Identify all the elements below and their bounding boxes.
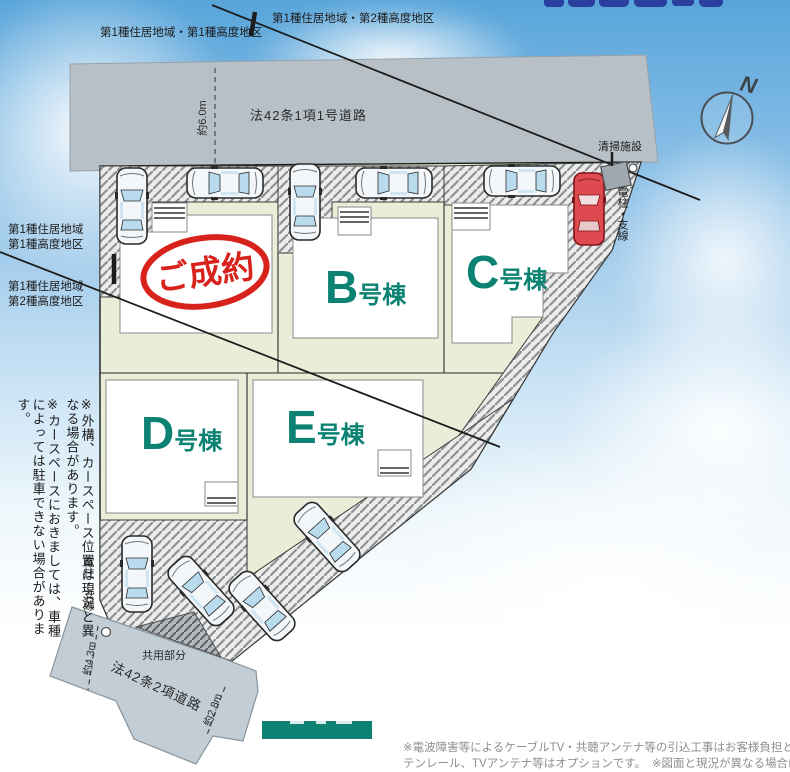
car <box>187 166 263 200</box>
compass: N <box>702 71 761 144</box>
car <box>120 536 154 612</box>
site-plan: 法42条1項1号道路 約6.0m 約4.3m 約2.8m 法 <box>0 0 790 772</box>
disclaimer: ※電波障害等によるケーブルTV・共聴アンテナ等の引込工事はお客様負担とな テンレ… <box>403 741 790 772</box>
shared-area-label: 共用部分 <box>142 648 186 662</box>
car <box>288 164 322 240</box>
disclaimer-line-2: テンレール、TVアンテナ等はオプションです。 ※図面と現況が異なる場合は現 <box>403 757 790 772</box>
cutoff-teal-banner <box>262 721 372 739</box>
utility-pole-label-right: 電柱・支線 <box>616 186 629 241</box>
side-notes: ※外構、カースペース位置は現況と異なる場合があります。 ※カースペースにおきまし… <box>12 398 95 650</box>
utility-pole-dot-right <box>629 164 637 172</box>
car-red <box>572 173 606 245</box>
top-road-label: 法42条1項1号道路 <box>250 108 367 123</box>
zoning-left-label-1a: 第1種住居地域 <box>8 222 84 236</box>
top-road-width-label: 約6.0m <box>195 100 209 135</box>
plan-drawing: 法42条1項1号道路 約6.0m 約4.3m 約2.8m 法 <box>0 0 790 772</box>
zoning-top-label-1: 第1種住居地域・第1種高度地区 <box>100 25 262 39</box>
disclaimer-line-1: ※電波障害等によるケーブルTV・共聴アンテナ等の引込工事はお客様負担とな <box>403 741 790 757</box>
car <box>115 168 149 244</box>
cutoff-title-fragment <box>544 0 723 7</box>
cleaning-facility-label: 清掃施設 <box>598 139 642 153</box>
car <box>484 164 560 198</box>
side-note-2: ※カースペースにおきましては、車種によっては駐車できない場合があります。 <box>15 398 61 650</box>
car <box>356 166 432 200</box>
zoning-left-label-2a: 第1種住居地域 <box>8 279 84 293</box>
utility-pole-dot-left <box>102 628 111 637</box>
zoning-top-label-2: 第1種住居地域・第2種高度地区 <box>272 11 434 25</box>
zoning-left-label-1b: 第1種高度地区 <box>8 237 83 251</box>
top-road: 法42条1項1号道路 約6.0m <box>70 55 658 171</box>
zoning-left-label-2b: 第2種高度地区 <box>8 294 83 308</box>
side-note-1: ※外構、カースペース位置は現況と異なる場合があります。 <box>64 398 95 650</box>
compass-north-label: N <box>738 71 761 99</box>
